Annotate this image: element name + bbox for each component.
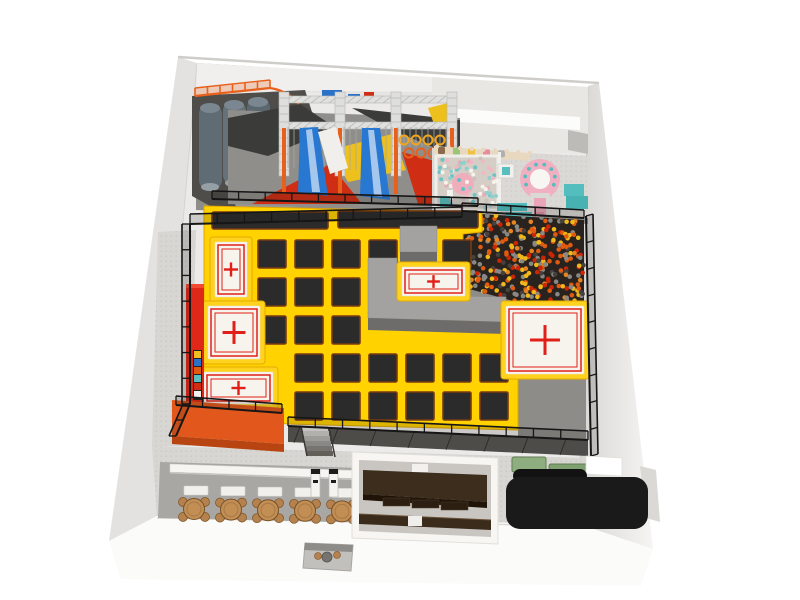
carousel-seat	[524, 183, 528, 187]
ball	[555, 260, 560, 265]
ball	[509, 229, 514, 234]
scallop	[458, 146, 462, 150]
ball	[543, 244, 548, 249]
ball	[515, 228, 520, 233]
ball	[536, 258, 541, 263]
party-bar-gap	[408, 516, 422, 526]
ball	[552, 227, 557, 232]
pastel-ball	[469, 169, 473, 173]
kids-ball-dome	[452, 173, 474, 195]
ball	[557, 284, 562, 289]
jump-square	[480, 392, 508, 420]
ball	[564, 234, 569, 239]
ball	[543, 283, 548, 288]
ball	[567, 274, 572, 279]
jump-square	[332, 392, 360, 420]
ball	[564, 245, 569, 250]
ball	[561, 284, 566, 289]
climb-hold	[194, 375, 201, 382]
white-bench	[184, 486, 208, 495]
ball	[543, 219, 548, 224]
vending-top	[329, 469, 338, 474]
ball	[475, 271, 480, 276]
stairs	[301, 426, 335, 457]
ball	[507, 276, 512, 281]
cafe-table-set	[253, 499, 284, 523]
ball	[564, 220, 569, 225]
ball	[570, 220, 575, 225]
dome-spot	[468, 186, 472, 190]
ball	[492, 221, 497, 226]
ball	[512, 220, 517, 225]
pastel-ball	[484, 187, 488, 191]
ball	[478, 262, 483, 267]
stair-step	[305, 441, 331, 446]
dome-spot	[457, 178, 461, 182]
ball	[524, 274, 529, 279]
ball	[488, 268, 493, 273]
jump-square	[258, 240, 286, 268]
ball	[544, 228, 549, 233]
carousel-center	[530, 169, 550, 189]
ball	[511, 286, 516, 291]
ball	[558, 254, 563, 259]
cafe-table-set	[179, 498, 210, 522]
white-card	[586, 456, 622, 476]
jump-square	[443, 392, 471, 420]
ball	[489, 285, 494, 290]
party-wall-gap	[412, 464, 428, 472]
ball	[572, 232, 577, 237]
ball	[530, 227, 535, 232]
ball	[483, 289, 488, 294]
carousel-seat	[534, 163, 538, 167]
scallop	[504, 149, 508, 153]
party-bench	[441, 502, 468, 510]
airbag-pad	[501, 301, 589, 379]
ball	[556, 247, 561, 252]
ball	[529, 262, 534, 267]
scallop	[446, 145, 450, 149]
cafe-table-set	[216, 498, 247, 522]
ball	[555, 292, 560, 297]
jump-square	[332, 354, 360, 382]
carousel-seat	[552, 183, 556, 187]
ball	[538, 266, 543, 271]
pastel-ball	[448, 176, 452, 180]
stair-step	[307, 451, 333, 456]
climb-hold	[194, 351, 201, 358]
scallop	[516, 150, 520, 154]
ball	[512, 292, 517, 297]
stair-step	[304, 436, 330, 441]
pastel-ball	[465, 167, 469, 171]
platform-cube	[400, 226, 437, 264]
pastel-ball	[439, 177, 443, 181]
dome-spot	[465, 180, 469, 184]
ball	[581, 263, 586, 268]
pastel-ball	[473, 193, 477, 197]
ball	[564, 296, 569, 301]
ball	[495, 269, 500, 274]
support-post	[394, 128, 398, 194]
ball	[551, 238, 556, 243]
ball	[497, 258, 502, 263]
ball	[492, 245, 497, 250]
ball	[541, 255, 546, 260]
airbag-pad	[210, 237, 252, 302]
ball	[578, 278, 583, 283]
ball	[506, 255, 511, 260]
jump-square	[332, 316, 360, 344]
climb-hold	[194, 383, 201, 390]
ball	[568, 256, 573, 261]
ball	[564, 286, 569, 291]
pastel-ball	[489, 168, 493, 172]
scallop	[493, 148, 497, 152]
ball	[486, 238, 491, 243]
ball	[547, 288, 552, 293]
ball	[506, 288, 511, 293]
alcove-table	[322, 552, 332, 562]
white-bench	[258, 487, 282, 496]
cube-top	[400, 226, 437, 252]
jump-square	[406, 354, 434, 382]
scallop	[481, 148, 485, 152]
pastel-ball	[488, 191, 492, 195]
ball	[527, 253, 532, 258]
carousel-seat	[523, 175, 527, 179]
ball	[471, 270, 476, 275]
jump-square	[332, 278, 360, 306]
pastel-ball	[473, 165, 477, 169]
ball	[536, 249, 541, 254]
jump-square	[332, 240, 360, 268]
ball	[559, 268, 564, 273]
ball	[521, 294, 526, 299]
ball	[524, 266, 529, 271]
slide-cap	[200, 103, 220, 113]
ball	[483, 275, 488, 280]
alcove-chair	[315, 553, 322, 560]
ball	[554, 279, 559, 284]
pastel-ball	[478, 192, 482, 196]
ball	[572, 251, 577, 256]
ball	[473, 283, 478, 288]
pastel-ball	[441, 158, 445, 162]
stair-step	[306, 446, 332, 451]
pastel-ball	[449, 169, 453, 173]
wall-corner-panel	[568, 130, 588, 154]
ball	[580, 292, 585, 297]
pastel-ball	[444, 181, 448, 185]
ball	[489, 227, 494, 232]
pastel-ball	[454, 165, 458, 169]
ball	[496, 253, 501, 258]
ball	[520, 259, 525, 264]
kids-shelf-toy	[502, 167, 510, 175]
climb-hold	[194, 367, 201, 374]
carousel-seat	[549, 167, 553, 171]
support-post	[282, 128, 286, 194]
scene	[0, 0, 800, 600]
trampoline-park-render	[0, 0, 800, 600]
pastel-ball	[481, 159, 485, 163]
ball	[536, 240, 541, 245]
reception-desk	[506, 477, 648, 529]
ball	[576, 236, 581, 241]
ball	[510, 245, 515, 250]
dome-spot	[461, 187, 465, 191]
stair-step	[303, 431, 329, 436]
jump-square	[369, 354, 397, 382]
ball	[532, 290, 537, 295]
pastel-ball	[488, 176, 492, 180]
ball	[519, 255, 524, 260]
pastel-ball	[481, 185, 485, 189]
jump-square	[295, 392, 323, 420]
pastel-ball	[490, 195, 494, 199]
ball	[529, 249, 534, 254]
ball	[476, 278, 481, 283]
pastel-ball	[443, 164, 447, 168]
pastel-ball	[494, 179, 498, 183]
alcove-chair	[334, 552, 341, 559]
white-bench	[221, 487, 245, 496]
pastel-ball	[494, 194, 498, 198]
ball	[529, 220, 534, 225]
ball	[547, 259, 552, 264]
ball	[576, 282, 581, 287]
climb-hold	[194, 359, 201, 366]
ball	[498, 222, 503, 227]
slide-cap	[248, 97, 268, 107]
pastel-ball	[447, 166, 451, 170]
ball	[485, 282, 490, 287]
ball	[515, 246, 520, 251]
vending-panel	[331, 480, 336, 483]
ball	[524, 289, 529, 294]
ball	[501, 282, 506, 287]
airbag-pad	[397, 262, 470, 301]
kids-bench	[566, 196, 588, 209]
ball	[580, 271, 585, 276]
ball	[501, 260, 506, 265]
ball	[522, 228, 527, 233]
ball	[504, 237, 509, 242]
fence-segment	[182, 224, 190, 404]
ball	[479, 235, 484, 240]
ball	[481, 266, 486, 271]
ball	[535, 270, 540, 275]
pastel-ball	[471, 173, 475, 177]
ball	[485, 232, 490, 237]
jump-square	[295, 316, 323, 344]
vending-panel	[313, 480, 318, 483]
vending-machine	[329, 469, 338, 497]
ball	[553, 272, 558, 277]
ball	[523, 282, 528, 287]
ball	[478, 245, 483, 250]
carousel-seat	[527, 167, 531, 171]
ball	[487, 251, 492, 256]
pastel-ball	[460, 161, 464, 165]
pastel-ball	[481, 171, 485, 175]
kids-bench	[564, 184, 584, 196]
jump-square	[295, 278, 323, 306]
ball	[514, 254, 519, 259]
slide-cap	[224, 100, 244, 110]
ball	[510, 249, 515, 254]
ball	[478, 253, 483, 258]
airbag-pad	[203, 301, 265, 364]
party-bench	[383, 498, 410, 506]
party-room	[352, 452, 498, 544]
ball	[553, 232, 558, 237]
pastel-ball	[491, 176, 495, 180]
cafe-table-set	[290, 499, 321, 523]
ball	[535, 295, 540, 300]
pastel-ball	[469, 160, 473, 164]
ball	[495, 238, 500, 243]
carousel-seat	[542, 163, 546, 167]
ball	[484, 219, 489, 224]
slide-lane	[199, 104, 222, 190]
ball	[514, 241, 519, 246]
ball	[538, 284, 543, 289]
ball	[508, 263, 513, 268]
fence-net	[182, 224, 190, 404]
ball	[485, 214, 490, 219]
ball	[546, 279, 551, 284]
pastel-ball	[445, 159, 449, 163]
pastel-ball	[441, 170, 445, 174]
vending-machine	[311, 469, 320, 497]
ball	[540, 231, 545, 236]
pastel-ball	[482, 193, 486, 197]
carousel-seat	[553, 175, 557, 179]
ball	[578, 255, 583, 260]
ball	[577, 264, 582, 269]
vending-top	[311, 469, 320, 474]
ball	[501, 271, 506, 276]
jump-square	[369, 392, 397, 420]
jump-square	[443, 354, 471, 382]
ball	[539, 271, 544, 276]
ball	[486, 255, 491, 260]
pastel-ball	[438, 166, 442, 170]
ball	[494, 288, 499, 293]
ball	[516, 266, 521, 271]
slide-runout	[201, 183, 219, 191]
ball	[569, 285, 574, 290]
ball	[550, 254, 555, 259]
ball	[560, 219, 565, 224]
jump-square	[406, 392, 434, 420]
ball	[490, 276, 495, 281]
ball	[576, 273, 581, 278]
ball	[570, 293, 575, 298]
scallop	[470, 147, 474, 151]
entrance-alcove	[303, 543, 353, 571]
ball	[472, 260, 477, 265]
ball	[534, 263, 539, 268]
ball	[526, 293, 531, 298]
ball	[568, 243, 573, 248]
ball	[564, 256, 569, 261]
jump-square	[295, 240, 323, 268]
animal-decor	[438, 147, 445, 154]
ball	[519, 234, 524, 239]
scallop	[528, 151, 532, 155]
ball	[505, 218, 510, 223]
jump-square	[295, 354, 323, 382]
pastel-ball	[485, 199, 489, 203]
ball	[494, 213, 499, 218]
scallop	[435, 144, 439, 148]
party-bench	[412, 500, 439, 508]
ball	[500, 227, 505, 232]
ball	[548, 218, 553, 223]
